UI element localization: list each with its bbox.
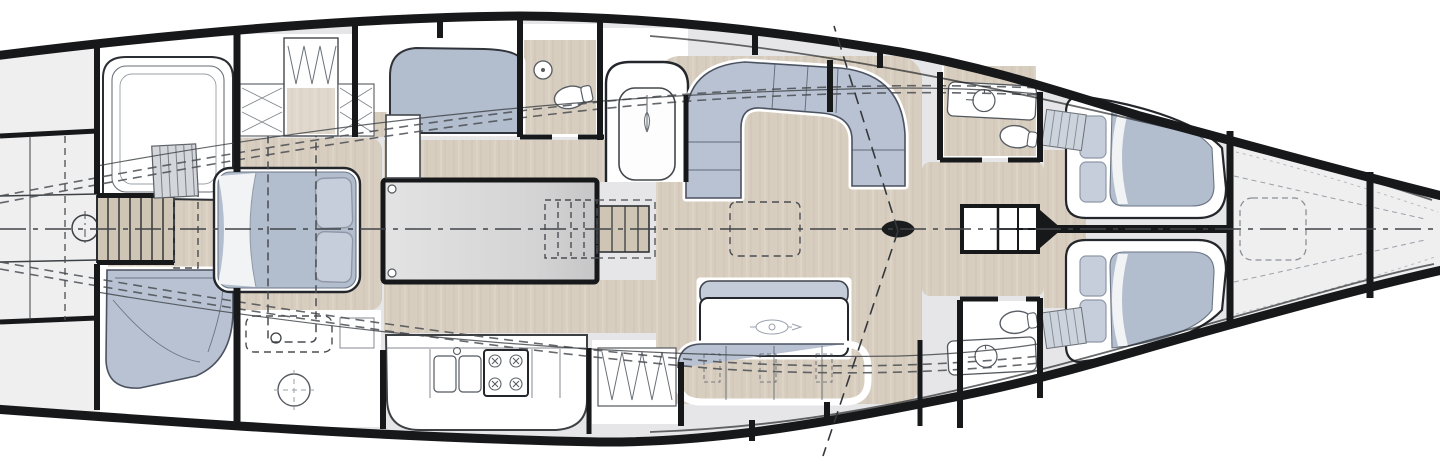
engine-box [383, 180, 597, 282]
plan-drawing [0, 0, 1440, 460]
seat-slats [1042, 307, 1087, 348]
nav-seat [606, 62, 688, 182]
pillow [315, 231, 353, 282]
double-berth [214, 168, 360, 292]
engine-bolt [388, 269, 396, 277]
yacht-interior-plan [0, 0, 1440, 460]
corridor-bottom-floor [384, 280, 662, 333]
stove-4-burner [484, 350, 528, 396]
engine-bolt [388, 185, 396, 193]
hanging-locker-mid [598, 348, 676, 406]
guest-cabin-bottom [1042, 240, 1226, 362]
cockpit-floor [0, 43, 97, 411]
sink-basin [434, 356, 456, 392]
seat-slats [1042, 109, 1087, 150]
pillow [315, 177, 353, 228]
sink-basin [459, 356, 481, 392]
shelf-locker [240, 84, 284, 136]
pillow [1080, 162, 1106, 202]
hanging-locker [284, 38, 338, 136]
pillow [1080, 256, 1106, 296]
